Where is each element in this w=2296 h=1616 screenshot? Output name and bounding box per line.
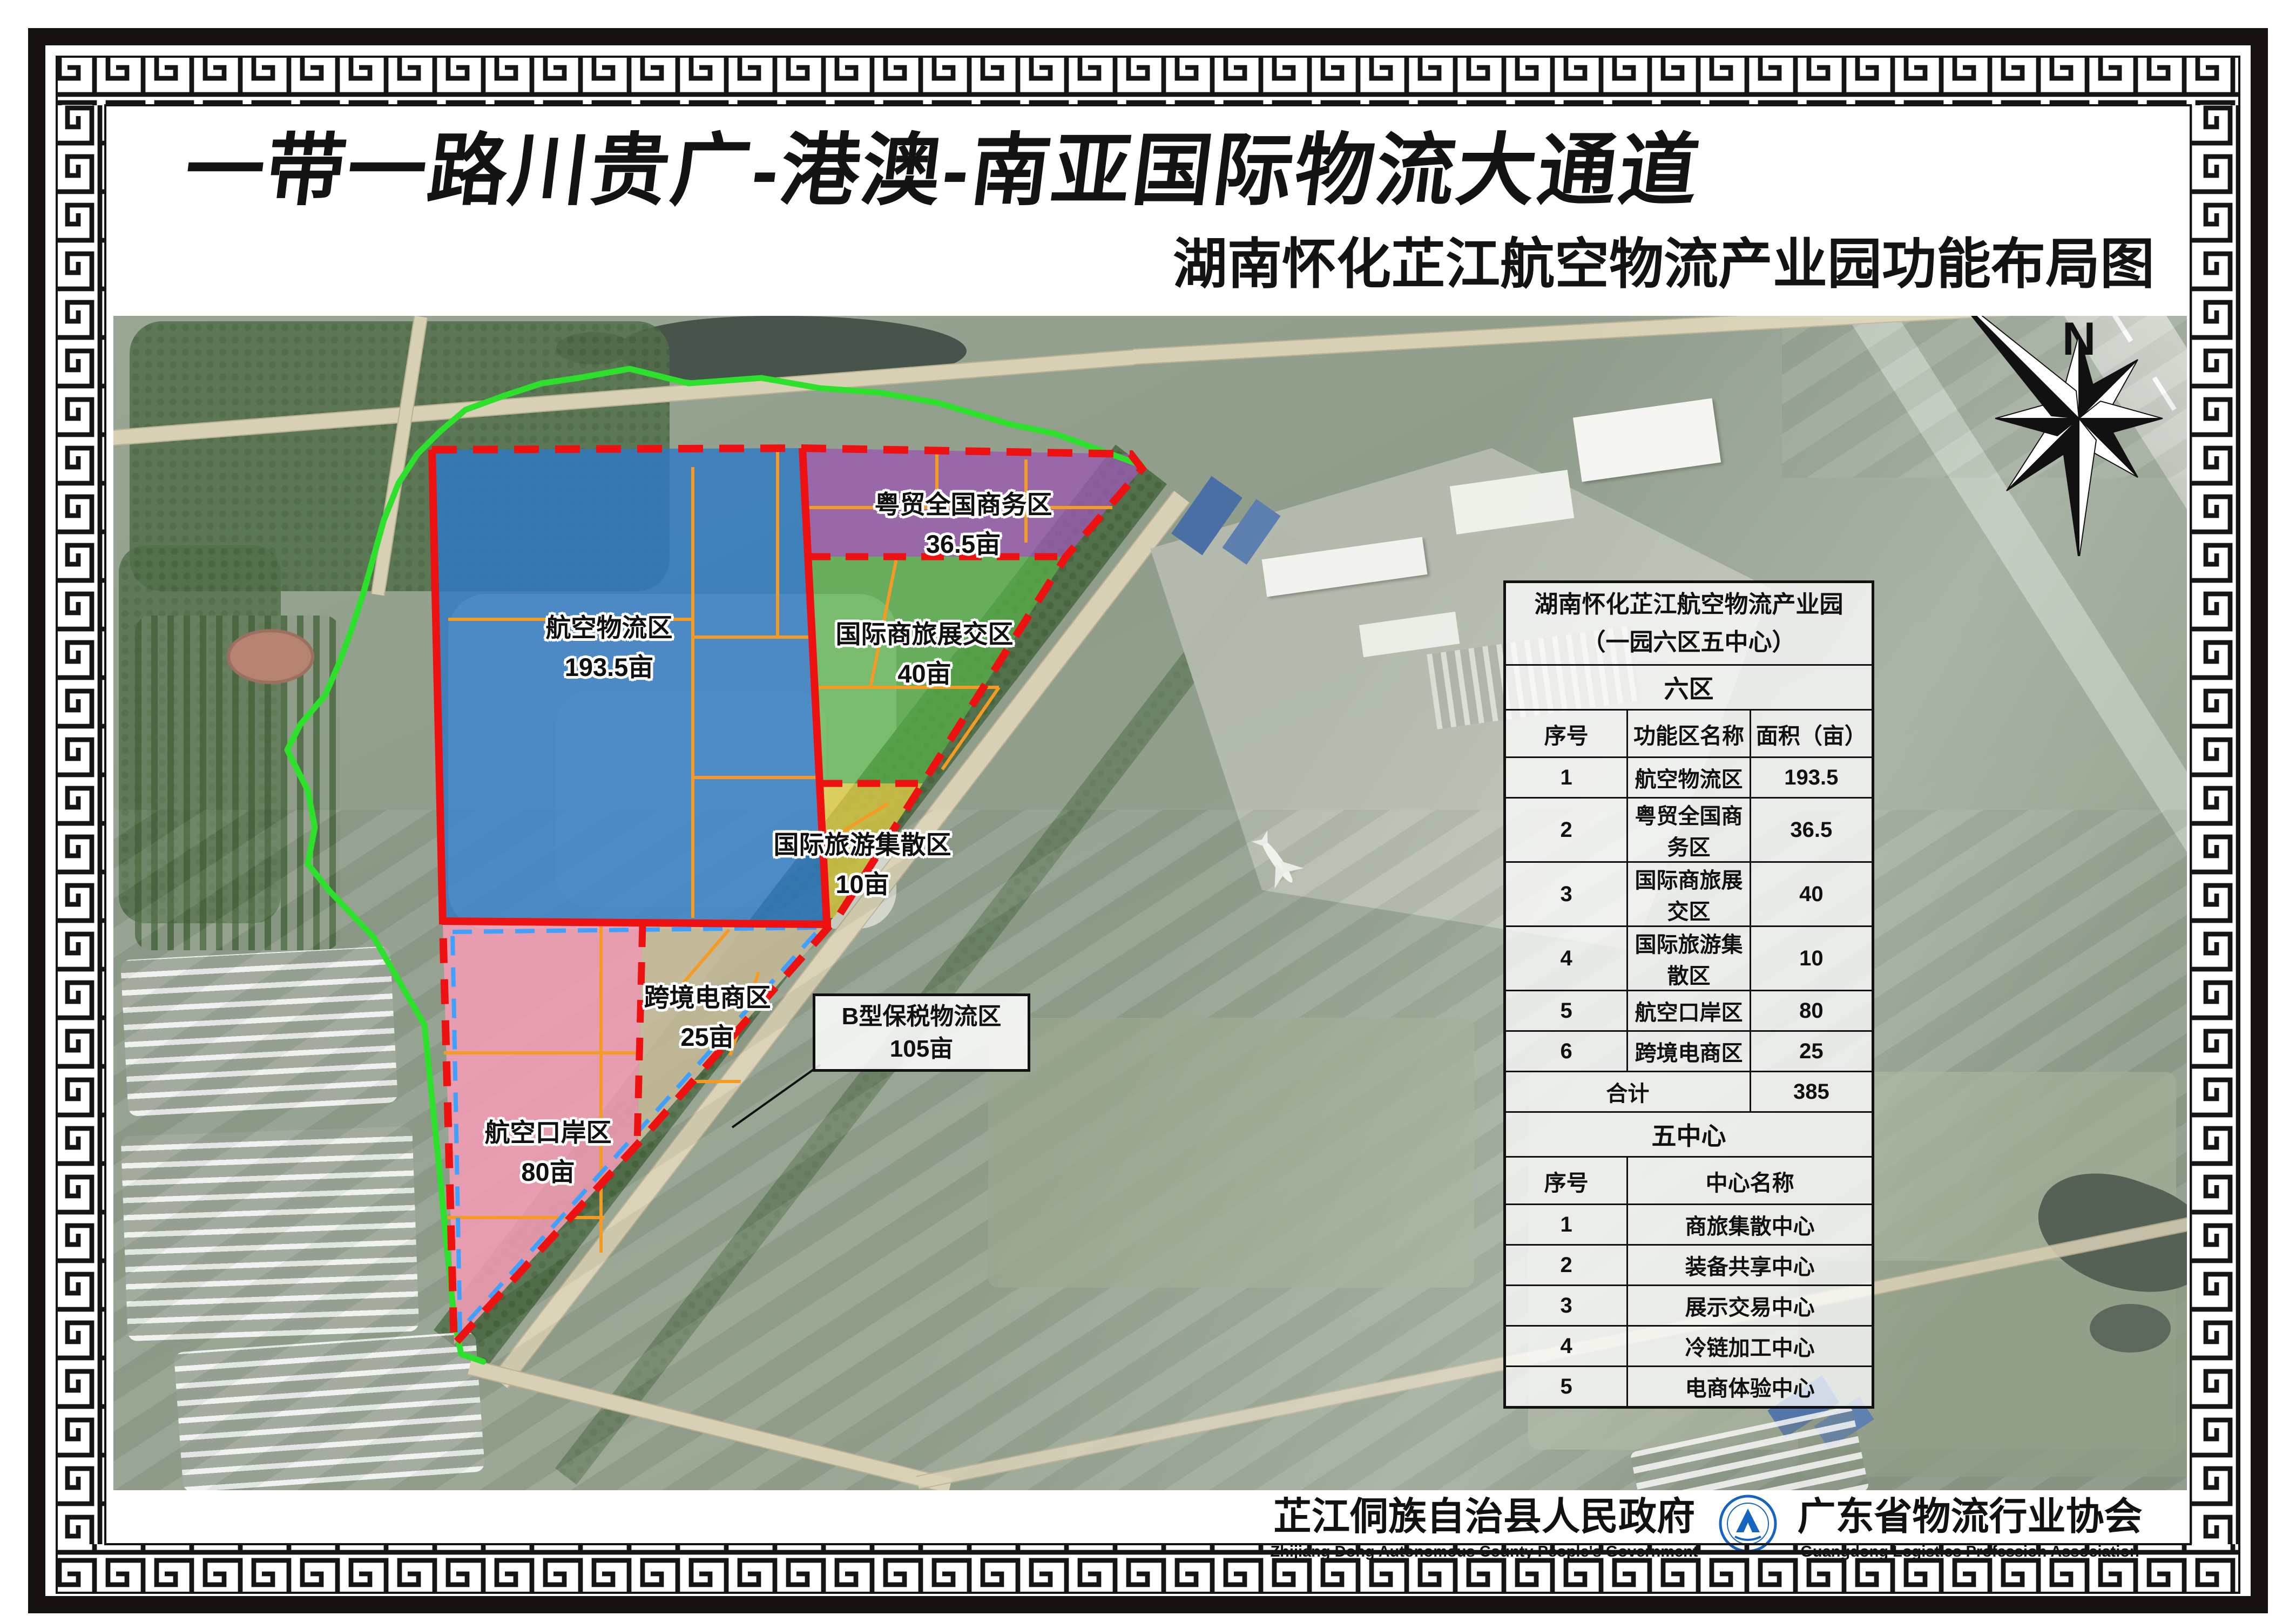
park-info-table: 湖南怀化芷江航空物流产业园 （一园六区五中心） 六区 序号 功能区名称 面积（亩… bbox=[1503, 580, 1874, 1409]
org-government-name: 芷江侗族自治县人民政府 bbox=[1270, 1486, 1698, 1541]
table-cell: 4 bbox=[1505, 927, 1628, 991]
zone-label-intl-tourism: 国际旅游集散区10亩 bbox=[774, 826, 951, 904]
footer: 芷江侗族自治县人民政府 Zhijiang Dong Autonomous Cou… bbox=[1199, 1486, 2214, 1561]
info-table-body: 湖南怀化芷江航空物流产业园 （一园六区五中心） 六区 序号 功能区名称 面积（亩… bbox=[1505, 582, 1873, 758]
table-cell: 193.5 bbox=[1750, 758, 1873, 798]
five-centers-body: 1商旅集散中心2装备共享中心3展示交易中心4冷链加工中心5电商体验中心 bbox=[1505, 1205, 1873, 1408]
table-cell: 国际旅游集散区 bbox=[1628, 927, 1750, 991]
table-cell: 国际商旅展交区 bbox=[1628, 862, 1750, 927]
table-cell: 25 bbox=[1750, 1031, 1873, 1072]
sub-title: 湖南怀化芷江航空物流产业园功能布局图 bbox=[1173, 220, 2155, 299]
table-row: 4国际旅游集散区10 bbox=[1505, 927, 1873, 991]
table-cell: 跨境电商区 bbox=[1628, 1031, 1750, 1072]
table-cell: 40 bbox=[1750, 862, 1873, 927]
association-logo-icon bbox=[1719, 1495, 1777, 1553]
six-zones-body: 1航空物流区193.52粤贸全国商务区36.53国际商旅展交区404国际旅游集散… bbox=[1505, 758, 1873, 1072]
zone-label-aviation-logistics: 航空物流区193.5亩 bbox=[546, 608, 673, 687]
zone-label-yuemao-business: 粤贸全国商务区36.5亩 bbox=[875, 485, 1052, 564]
table-cell: 80 bbox=[1750, 991, 1873, 1031]
org-government: 芷江侗族自治县人民政府 Zhijiang Dong Autonomous Cou… bbox=[1270, 1486, 1698, 1561]
col-header-index-2: 序号 bbox=[1505, 1157, 1628, 1205]
table-cell: 2 bbox=[1505, 798, 1628, 862]
main-title: 一带一路川贵广-港澳-南亚国际物流大通道 bbox=[179, 107, 1708, 221]
bonded-leader-line bbox=[732, 1065, 820, 1127]
section-six-zones: 六区 bbox=[1505, 665, 1873, 710]
table-cell: 展示交易中心 bbox=[1628, 1286, 1873, 1326]
table-cell: 航空口岸区 bbox=[1628, 991, 1750, 1031]
table-row: 6跨境电商区25 bbox=[1505, 1031, 1873, 1072]
section-five-centers: 五中心 bbox=[1505, 1112, 1873, 1157]
table-row: 3国际商旅展交区40 bbox=[1505, 862, 1873, 927]
table-row: 1商旅集散中心 bbox=[1505, 1205, 1873, 1245]
zone-label-intl-expo: 国际商旅展交区40亩 bbox=[836, 615, 1014, 694]
table-cell: 5 bbox=[1505, 1367, 1628, 1408]
table-cell: 6 bbox=[1505, 1031, 1628, 1072]
table-cell: 1 bbox=[1505, 1205, 1628, 1245]
col-header-index: 序号 bbox=[1505, 710, 1628, 758]
table-cell: 36.5 bbox=[1750, 798, 1873, 862]
table-subtitle: （一园六区五中心） bbox=[1506, 624, 1872, 661]
table-cell: 2 bbox=[1505, 1245, 1628, 1286]
col-header-zone-name: 功能区名称 bbox=[1628, 710, 1750, 758]
table-cell: 粤贸全国商务区 bbox=[1628, 798, 1750, 862]
compass-rose: N bbox=[1966, 308, 2192, 556]
table-cell: 3 bbox=[1505, 862, 1628, 927]
zone-label-bonded: B型保税物流区105亩 bbox=[813, 993, 1030, 1072]
col-header-center-name: 中心名称 bbox=[1628, 1157, 1873, 1205]
table-row: 4冷链加工中心 bbox=[1505, 1326, 1873, 1367]
zone-label-cross-border: 跨境电商区25亩 bbox=[644, 978, 771, 1057]
table-cell: 电商体验中心 bbox=[1628, 1367, 1873, 1408]
total-label-cell: 合计 bbox=[1505, 1072, 1751, 1112]
table-cell: 10 bbox=[1750, 927, 1873, 991]
table-title-cell: 湖南怀化芷江航空物流产业园 （一园六区五中心） bbox=[1505, 582, 1873, 665]
table-row: 2装备共享中心 bbox=[1505, 1245, 1873, 1286]
table-cell: 航空物流区 bbox=[1628, 758, 1750, 798]
table-cell: 冷链加工中心 bbox=[1628, 1326, 1873, 1367]
table-row: 1航空物流区193.5 bbox=[1505, 758, 1873, 798]
table-cell: 商旅集散中心 bbox=[1628, 1205, 1873, 1245]
col-header-area: 面积（亩） bbox=[1750, 710, 1873, 758]
table-cell: 5 bbox=[1505, 991, 1628, 1031]
zone-label-aviation-port: 航空口岸区80亩 bbox=[485, 1113, 612, 1192]
table-title: 湖南怀化芷江航空物流产业园 bbox=[1506, 586, 1872, 624]
table-row: 3展示交易中心 bbox=[1505, 1286, 1873, 1326]
table-cell: 1 bbox=[1505, 758, 1628, 798]
table-row: 2粤贸全国商务区36.5 bbox=[1505, 798, 1873, 862]
org-association: 广东省物流行业协会 Guangdong Logistics Profession… bbox=[1798, 1486, 2143, 1561]
poster-page: 航空物流区193.5亩 粤贸全国商务区36.5亩 国际商旅展交区40亩 国际旅游… bbox=[0, 0, 2296, 1616]
total-value-cell: 385 bbox=[1750, 1072, 1873, 1112]
table-cell: 3 bbox=[1505, 1286, 1628, 1326]
zone-overlay bbox=[113, 316, 2187, 1490]
table-row: 5航空口岸区80 bbox=[1505, 991, 1873, 1031]
org-association-name: 广东省物流行业协会 bbox=[1798, 1486, 2143, 1541]
table-cell: 装备共享中心 bbox=[1628, 1245, 1873, 1286]
table-cell: 4 bbox=[1505, 1326, 1628, 1367]
table-row: 5电商体验中心 bbox=[1505, 1367, 1873, 1408]
org-government-name-en: Zhijiang Dong Autonomous County People's… bbox=[1270, 1543, 1698, 1561]
org-association-name-en: Guangdong Logistics Profession Associati… bbox=[1798, 1543, 2143, 1561]
